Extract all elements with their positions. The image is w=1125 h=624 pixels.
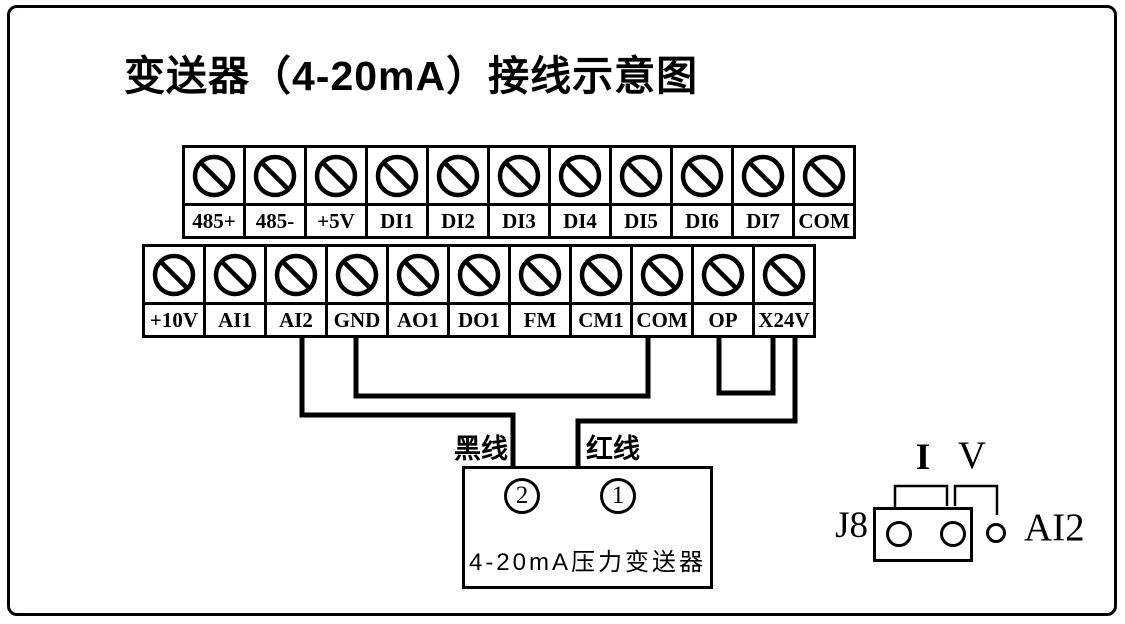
- terminal-label-DI5: DI5: [612, 206, 670, 236]
- terminal-label-+5V: +5V: [307, 206, 365, 236]
- terminal-screw-X24V: [755, 247, 813, 302]
- terminal-label-COM: COM: [795, 206, 853, 236]
- terminal-screw-DI6: [673, 148, 731, 203]
- terminal-screw-COM: [633, 247, 691, 302]
- diagram-title: 变送器（4-20mA）接线示意图: [124, 42, 698, 102]
- terminal-screw-DO1: [450, 247, 508, 302]
- screw-icon: [150, 251, 198, 299]
- transmitter-box: 2 1 4-20mA压力变送器: [462, 466, 713, 589]
- screw-icon: [699, 251, 747, 299]
- terminal-label-AI2: AI2: [267, 305, 325, 335]
- screw-icon: [455, 251, 503, 299]
- terminal-label-AO1: AO1: [389, 305, 447, 335]
- terminal-screw-AO1: [389, 247, 447, 302]
- terminal-label-+10V: +10V: [145, 305, 203, 335]
- terminal-screw-COM: [795, 148, 853, 203]
- terminal-label-DO1: DO1: [450, 305, 508, 335]
- screw-icon: [577, 251, 625, 299]
- jumper-name-label: J8: [818, 504, 868, 547]
- terminal-screw-GND: [328, 247, 386, 302]
- terminal-screw-AI1: [206, 247, 264, 302]
- screw-icon: [190, 152, 238, 200]
- jumper-pin-1: [886, 521, 912, 547]
- terminal-screw-DI2: [429, 148, 487, 203]
- terminal-screw-OP: [694, 247, 752, 302]
- terminal-screw-CM1: [572, 247, 630, 302]
- transmitter-terminal-2-number: 2: [516, 482, 529, 510]
- terminal-label-485+: 485+: [185, 206, 243, 236]
- terminal-screw-485+: [185, 148, 243, 203]
- screw-icon: [272, 251, 320, 299]
- screw-icon: [394, 251, 442, 299]
- terminal-screw-+5V: [307, 148, 365, 203]
- screw-icon: [434, 152, 482, 200]
- jumper-block: [873, 507, 973, 562]
- screw-icon: [312, 152, 360, 200]
- screw-icon: [251, 152, 299, 200]
- screw-icon: [800, 152, 848, 200]
- screw-icon: [760, 251, 808, 299]
- terminal-screw-DI3: [490, 148, 548, 203]
- terminal-label-X24V: X24V: [755, 305, 813, 335]
- terminal-label-FM: FM: [511, 305, 569, 335]
- terminal-label-DI2: DI2: [429, 206, 487, 236]
- terminal-row-top: 485+485-+5VDI1DI2DI3DI4DI5DI6DI7COM: [182, 145, 856, 239]
- red-wire-label: 红线: [586, 427, 640, 466]
- screw-icon: [211, 251, 259, 299]
- screw-icon: [638, 251, 686, 299]
- screw-icon: [516, 251, 564, 299]
- transmitter-terminal-1-number: 1: [612, 482, 625, 510]
- terminal-label-DI1: DI1: [368, 206, 426, 236]
- screw-icon: [373, 152, 421, 200]
- jumper-pin-3: [986, 523, 1006, 543]
- screw-icon: [333, 251, 381, 299]
- terminal-label-AI1: AI1: [206, 305, 264, 335]
- jumper-current-mode-label: I: [905, 436, 941, 479]
- terminal-screw-+10V: [145, 247, 203, 302]
- terminal-row-bottom: +10VAI1AI2GNDAO1DO1FMCM1COMOPX24V: [142, 244, 816, 338]
- jumper-pin-2: [940, 521, 966, 547]
- transmitter-terminal-1: 1: [600, 478, 636, 514]
- terminal-label-GND: GND: [328, 305, 386, 335]
- terminal-screw-AI2: [267, 247, 325, 302]
- terminal-label-DI4: DI4: [551, 206, 609, 236]
- terminal-label-485-: 485-: [246, 206, 304, 236]
- terminal-label-OP: OP: [694, 305, 752, 335]
- terminal-label-DI7: DI7: [734, 206, 792, 236]
- screw-icon: [617, 152, 665, 200]
- transmitter-terminal-2: 2: [504, 478, 540, 514]
- screw-icon: [556, 152, 604, 200]
- jumper-voltage-mode-label: V: [952, 433, 992, 478]
- terminal-screw-FM: [511, 247, 569, 302]
- terminal-screw-DI1: [368, 148, 426, 203]
- screw-icon: [678, 152, 726, 200]
- terminal-label-COM: COM: [633, 305, 691, 335]
- jumper-channel-label: AI2: [1024, 505, 1085, 550]
- screw-icon: [495, 152, 543, 200]
- terminal-screw-DI5: [612, 148, 670, 203]
- black-wire-label: 黑线: [428, 427, 508, 466]
- terminal-label-CM1: CM1: [572, 305, 630, 335]
- transmitter-label: 4-20mA压力变送器: [465, 542, 710, 577]
- terminal-screw-485-: [246, 148, 304, 203]
- screw-icon: [739, 152, 787, 200]
- terminal-label-DI6: DI6: [673, 206, 731, 236]
- terminal-screw-DI4: [551, 148, 609, 203]
- terminal-label-DI3: DI3: [490, 206, 548, 236]
- terminal-screw-DI7: [734, 148, 792, 203]
